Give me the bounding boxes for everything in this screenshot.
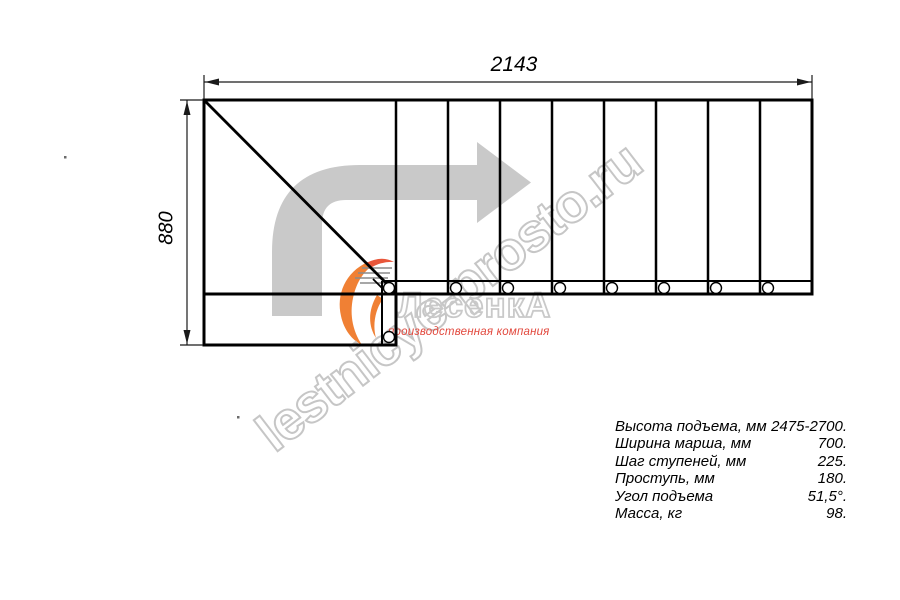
flight-outline [204, 100, 812, 294]
winder-diagonal [205, 101, 396, 293]
spec-label: Масса, кг [615, 505, 682, 522]
left-dimension-label: 880 [156, 211, 179, 244]
spec-label: Шаг ступеней, мм [615, 453, 746, 470]
staircase-plan-page: lestnicye-prosto.ru ЛесенкА производстве… [0, 0, 900, 600]
spec-label: Угол подъема [615, 488, 713, 505]
dimension-lines [180, 75, 812, 345]
spec-value: 98. [682, 505, 847, 522]
landing-outline [204, 294, 396, 345]
specs-table: Высота подъема, мм 2475-2700. Ширина мар… [615, 418, 847, 522]
spec-row: Угол подъема 51,5°. [615, 488, 847, 505]
spec-row: Масса, кг 98. [615, 505, 847, 522]
spec-row: Ширина марша, мм 700. [615, 435, 847, 452]
spec-value: 225. [746, 453, 847, 470]
spec-row: Высота подъема, мм 2475-2700. [615, 418, 847, 435]
spec-row: Проступь, мм 180. [615, 470, 847, 487]
spec-value: 51,5°. [713, 488, 847, 505]
top-dimension-label: 2143 [484, 53, 544, 77]
spec-value: 700. [751, 435, 847, 452]
spec-label: Ширина марша, мм [615, 435, 751, 452]
fastener-circles [384, 283, 774, 343]
dimension-arrowheads [184, 79, 812, 345]
spec-label: Высота подъема, мм [615, 418, 767, 435]
tread-lines [448, 100, 760, 294]
spec-value: 180. [715, 470, 847, 487]
spec-label: Проступь, мм [615, 470, 715, 487]
spec-row: Шаг ступеней, мм 225. [615, 453, 847, 470]
spec-value: 2475-2700. [767, 418, 847, 435]
